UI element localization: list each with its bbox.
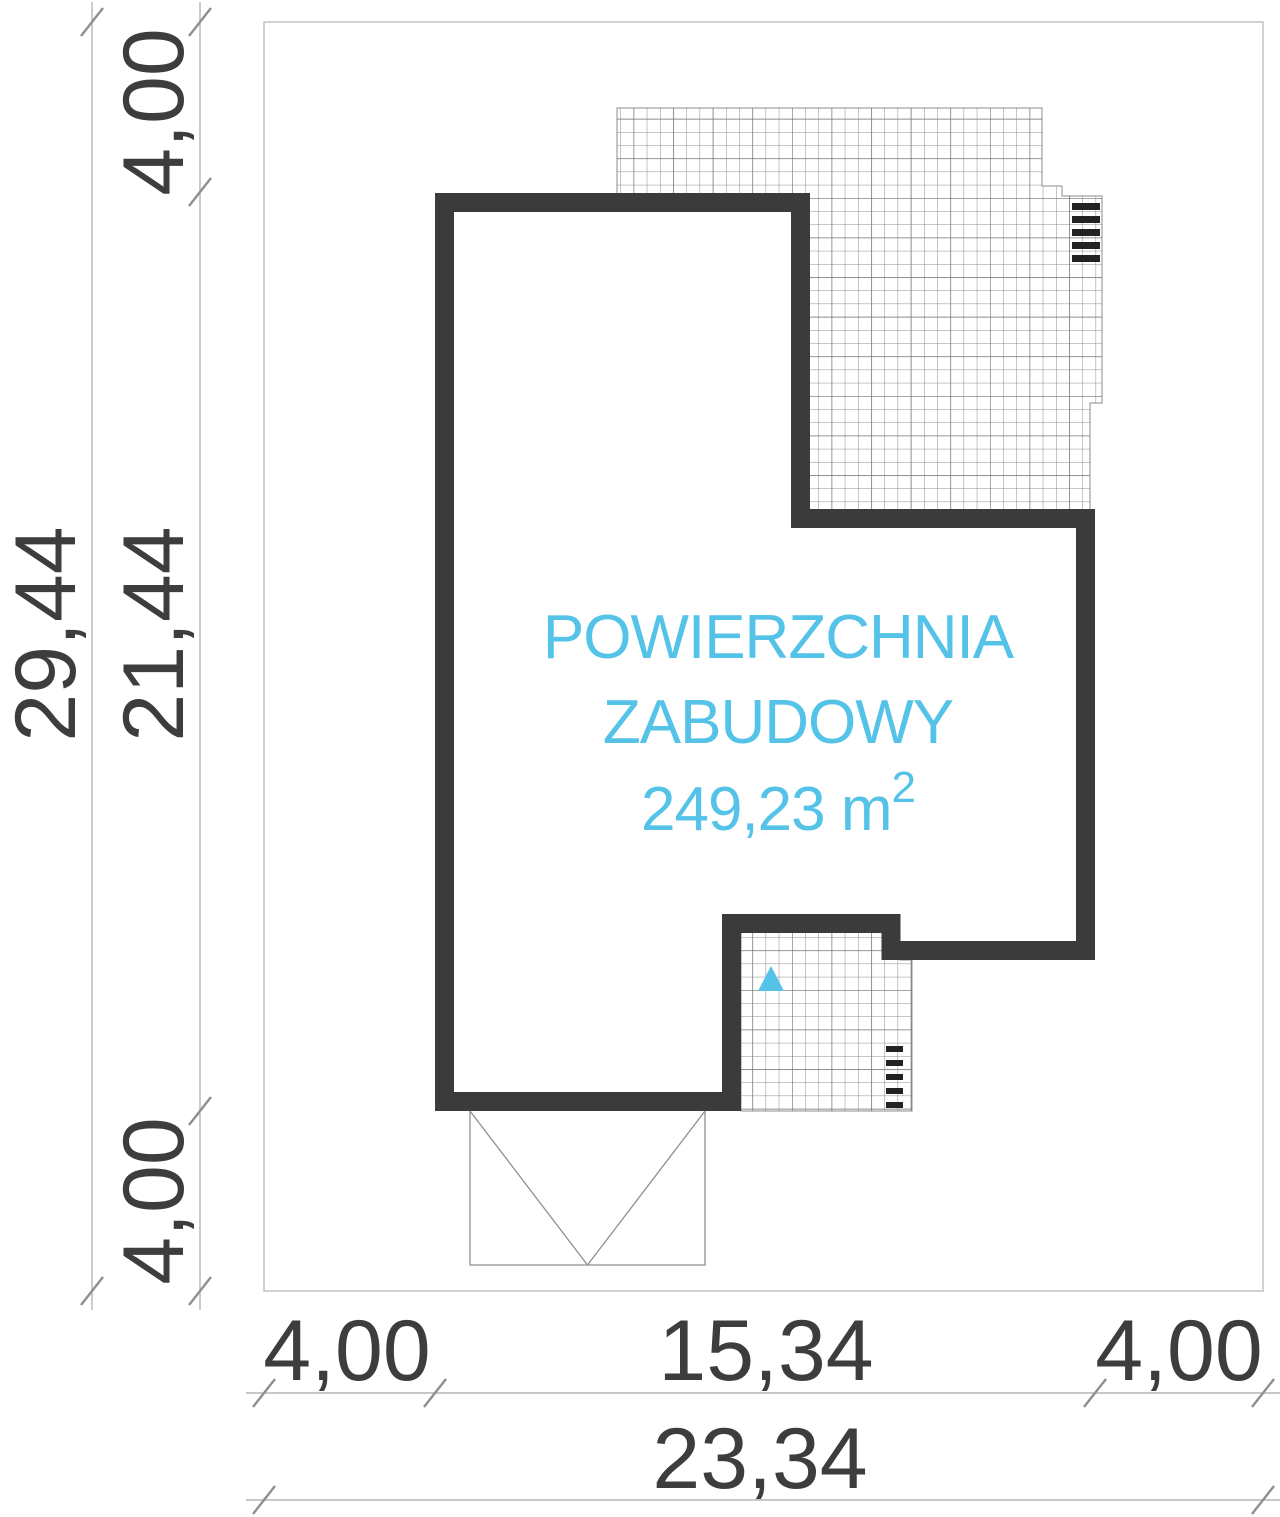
dim-label-left-total: 29,44 — [0, 526, 94, 741]
dim-label-bottom-left: 4,00 — [263, 1303, 430, 1399]
area-label-line2: ZABUDOWY — [603, 688, 953, 757]
site-plan-drawing: 29,44 4,00 21,44 4,00 4,00 15,34 4,00 23… — [0, 0, 1280, 1517]
site-plan-page: 29,44 4,00 21,44 4,00 4,00 15,34 4,00 23… — [0, 0, 1280, 1517]
dim-label-left-top: 4,00 — [106, 28, 202, 195]
dim-label-bottom-total: 23,34 — [652, 1411, 867, 1507]
area-label-value: 249,23 m2 — [641, 763, 915, 844]
dim-label-bottom-middle: 15,34 — [658, 1303, 873, 1399]
dim-label-bottom-right: 4,00 — [1095, 1303, 1262, 1399]
dim-label-left-bottom: 4,00 — [106, 1117, 202, 1284]
dim-label-left-middle: 21,44 — [106, 526, 202, 741]
area-label-line1: POWIERZCHNIA — [543, 603, 1015, 672]
